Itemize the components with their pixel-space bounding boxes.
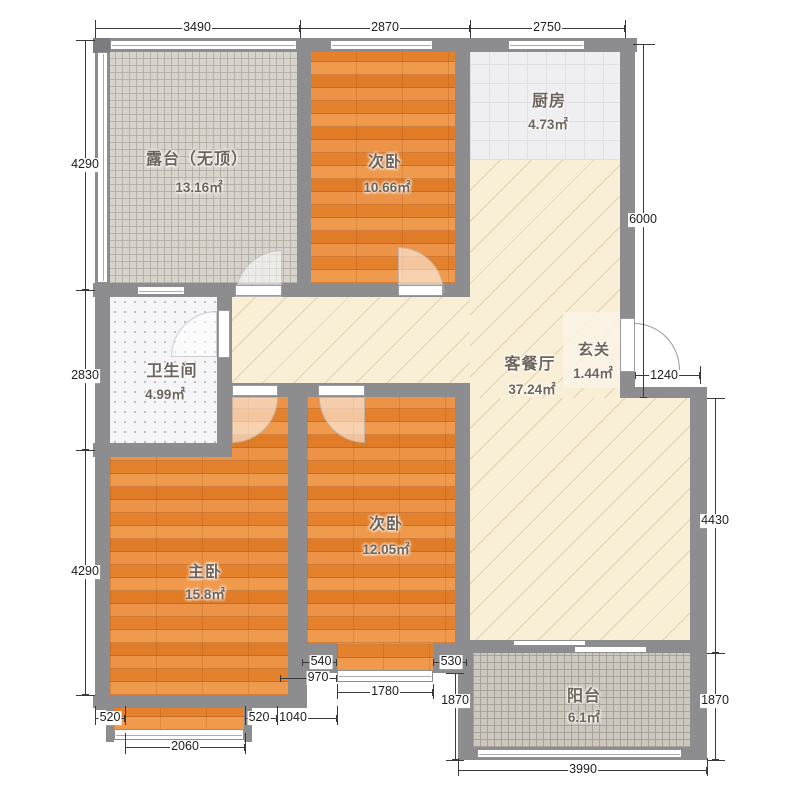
dim-label-left-3: 4290	[70, 565, 100, 579]
room-bedroom-top-name: 次卧	[368, 148, 402, 172]
room-kitchen-name: 厨房	[532, 87, 566, 111]
wall	[455, 38, 470, 283]
dim-label-970: 970	[307, 671, 330, 685]
dim-label-right-4: 1870	[700, 694, 730, 708]
room-balcony-area: 6.1㎡	[568, 706, 600, 726]
dim-label-1040: 1040	[278, 711, 308, 725]
bedroom-top-door-leaf	[398, 285, 443, 296]
extension-line	[245, 733, 246, 754]
extension-line	[446, 760, 464, 761]
entrance-door-leaf	[620, 318, 635, 372]
room-bathroom-area: 4.99㎡	[145, 383, 185, 403]
dim-label-530: 530	[440, 655, 463, 669]
room-bedroom-bottom-area: 12.05㎡	[362, 538, 409, 558]
extension-line	[707, 760, 725, 761]
dim-label-540: 540	[310, 655, 333, 669]
master-door-leaf	[232, 385, 278, 396]
bathroom-door-leaf	[218, 310, 230, 358]
extension-line	[125, 706, 126, 725]
room-living-name: 客餐厅	[504, 350, 555, 374]
room-terrace-area: 13.16㎡	[175, 176, 222, 196]
wall	[93, 443, 232, 457]
room-entry-name: 玄关	[578, 339, 610, 360]
dim-label-right-2: 1240	[649, 369, 679, 383]
hallway-floor	[225, 297, 470, 383]
wall	[297, 38, 311, 297]
dim-label-left-1: 4290	[70, 158, 100, 172]
bathroom-window	[137, 286, 185, 295]
dim-label-520-mid: 520	[248, 711, 271, 725]
room-bathroom-name: 卫生间	[146, 357, 197, 381]
extension-line	[433, 684, 434, 699]
extension-line	[337, 706, 338, 725]
extension-line	[707, 758, 708, 776]
room-terrace-name: 露台（无顶）	[146, 145, 248, 169]
room-kitchen-area: 4.73㎡	[528, 113, 568, 133]
room-entry-area: 1.44㎡	[573, 362, 613, 382]
terrace-door-leaf	[235, 285, 282, 296]
living-floor-lower	[470, 398, 690, 640]
extension-line	[76, 695, 95, 696]
bedroom-bottom-window	[337, 670, 433, 682]
dim-label-1780: 1780	[370, 685, 400, 699]
wall	[620, 38, 635, 318]
terrace-railing	[110, 40, 297, 50]
room-bedroom-bottom-name: 次卧	[369, 510, 403, 534]
room-master-area: 15.8㎡	[185, 583, 225, 603]
room-bedroom-top-area: 10.66㎡	[363, 176, 410, 196]
dimension-line	[455, 673, 456, 760]
balcony-sliding-door	[574, 646, 647, 653]
dim-label-1870-left: 1870	[440, 694, 470, 708]
entrance-door-swing-arc	[634, 323, 680, 370]
dim-label-right-3: 4430	[700, 514, 730, 528]
wall	[455, 383, 470, 653]
dim-label-top-2: 2870	[370, 21, 400, 35]
dim-label-3990: 3990	[568, 763, 598, 777]
corner-post	[93, 38, 110, 53]
kitchen-window	[508, 40, 585, 50]
bedroom-top-window	[330, 40, 433, 50]
extension-line	[625, 20, 626, 38]
extension-line	[700, 366, 701, 384]
bedroom-bottom-door-leaf	[318, 385, 365, 396]
room-master-name: 主卧	[188, 558, 222, 582]
balcony-railing	[477, 749, 682, 758]
dim-label-right-1: 6000	[628, 213, 658, 227]
wall	[620, 387, 707, 398]
bedroom-bottom-baywindow-floor	[337, 643, 433, 671]
room-living-area: 37.24㎡	[508, 378, 555, 398]
dim-label-top-1: 3490	[182, 21, 212, 35]
dim-label-2060: 2060	[170, 740, 200, 754]
room-balcony-name: 阳台	[567, 682, 601, 706]
dim-label-left-2: 2830	[70, 369, 100, 383]
dim-label-top-3: 2750	[532, 21, 562, 35]
floor-plan: 露台（无顶） 13.16㎡ 次卧 10.66㎡ 厨房 4.73㎡ 卫生间 4.9…	[0, 0, 800, 800]
dim-label-520-left: 520	[99, 711, 122, 725]
